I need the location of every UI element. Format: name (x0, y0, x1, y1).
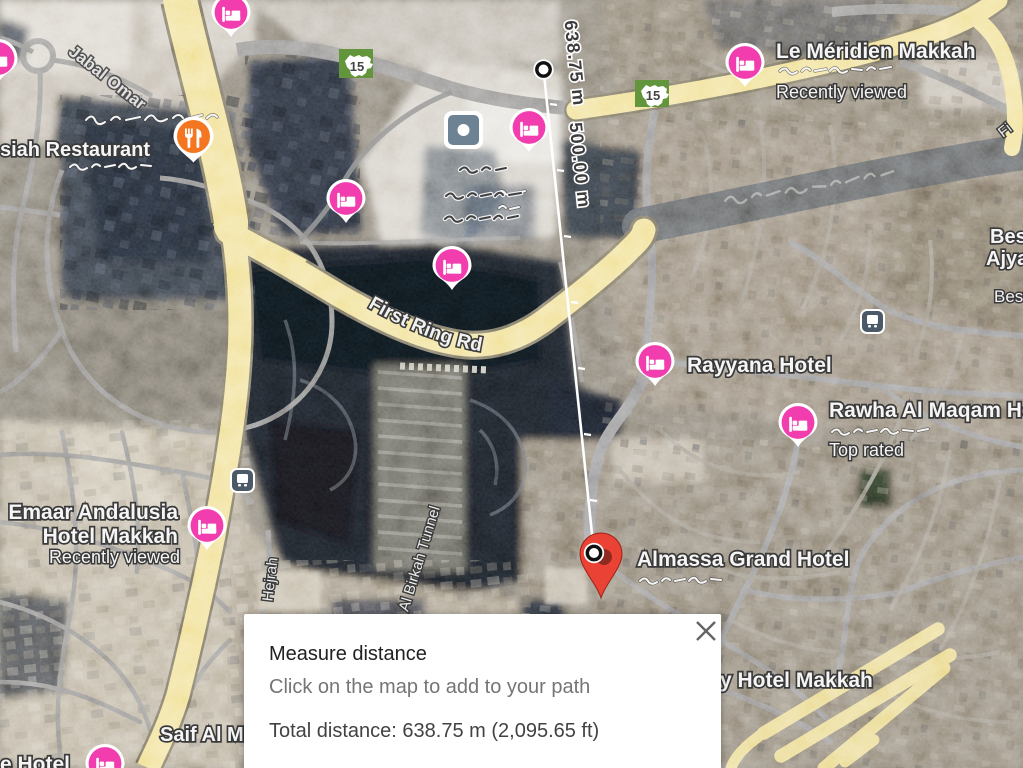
svg-text:e Hotel: e Hotel (0, 753, 70, 768)
svg-text:Le Méridien Makkah: Le Méridien Makkah (776, 40, 976, 63)
svg-text:Ajya: Ajya (986, 248, 1023, 270)
svg-text:15: 15 (646, 88, 660, 103)
svg-text:Click on the map to add to you: Click on the map to add to your path (269, 676, 590, 698)
svg-text:Emaar Andalusia: Emaar Andalusia (8, 501, 178, 524)
svg-text:Hotel Makkah: Hotel Makkah (43, 525, 178, 548)
svg-text:y Hotel Makkah: y Hotel Makkah (720, 669, 873, 692)
svg-text:Top rated: Top rated (829, 440, 904, 460)
svg-text:Rayyana Hotel: Rayyana Hotel (687, 354, 832, 377)
svg-text:Almassa Grand Hotel: Almassa Grand Hotel (637, 548, 849, 571)
svg-text:siah Restaurant: siah Restaurant (0, 139, 150, 161)
svg-text:Measure distance: Measure distance (269, 643, 427, 665)
svg-text:Total distance: 638.75 m (2,09: Total distance: 638.75 m (2,095.65 ft) (269, 720, 599, 742)
svg-text:Recently viewed: Recently viewed (49, 547, 180, 567)
svg-text:Best: Best (994, 287, 1023, 306)
svg-text:Rawha Al Maqam Ho: Rawha Al Maqam Ho (829, 399, 1023, 422)
svg-text:Recently viewed: Recently viewed (776, 82, 907, 102)
svg-text:15: 15 (350, 59, 364, 74)
svg-text:Saif Al M: Saif Al M (160, 724, 244, 746)
svg-text:Bes: Bes (990, 226, 1023, 248)
